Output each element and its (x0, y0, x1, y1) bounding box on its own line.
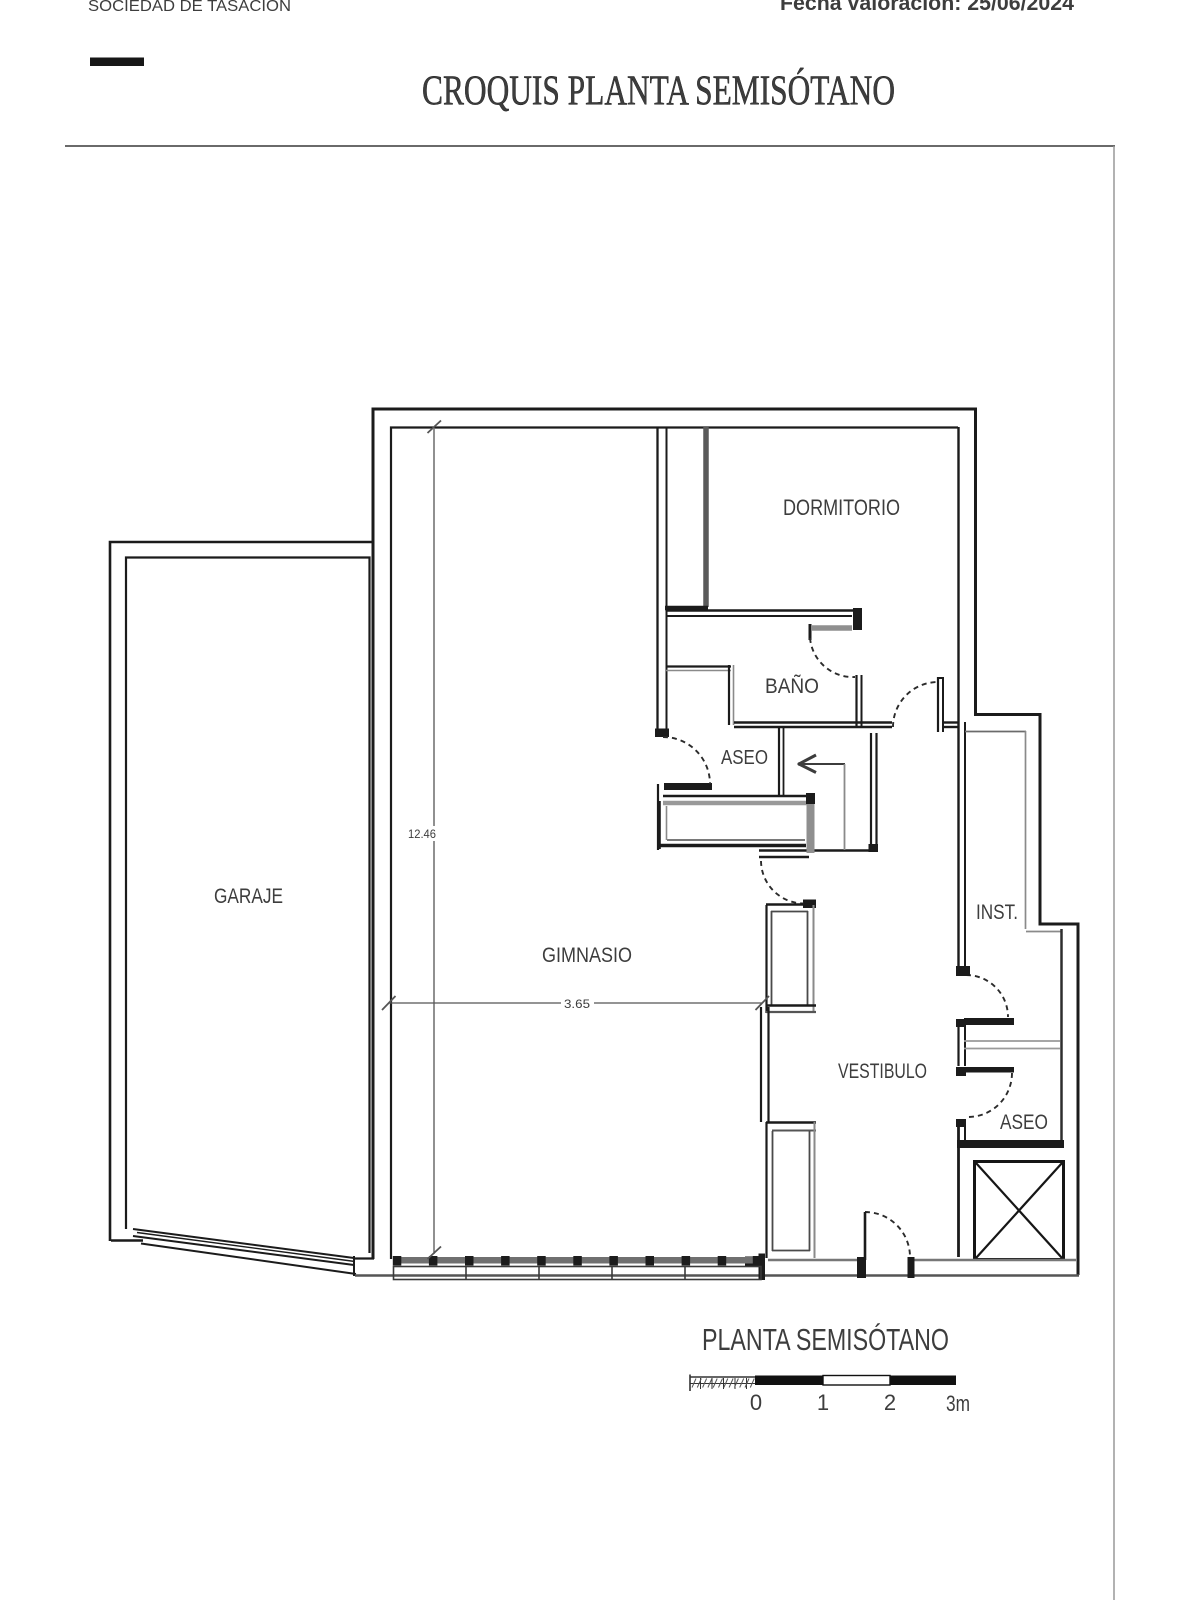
svg-text:BAÑO: BAÑO (765, 674, 819, 698)
svg-text:PLANTA SEMISÓTANO: PLANTA SEMISÓTANO (702, 1322, 949, 1357)
svg-text:GIMNASIO: GIMNASIO (542, 944, 632, 967)
svg-text:ASEO: ASEO (1000, 1110, 1048, 1134)
svg-text:GARAJE: GARAJE (214, 885, 283, 908)
svg-text:Fecha valoración: 25/06/2024: Fecha valoración: 25/06/2024 (780, 0, 1074, 15)
svg-text:CROQUIS PLANTA SEMISÓTANO: CROQUIS PLANTA SEMISÓTANO (422, 68, 895, 115)
svg-text:ASEO: ASEO (721, 747, 768, 769)
svg-text:3.65: 3.65 (564, 999, 590, 1011)
svg-text:DORMITORIO: DORMITORIO (783, 495, 900, 520)
svg-text:0: 0 (750, 1390, 762, 1415)
svg-text:INST.: INST. (976, 901, 1018, 924)
svg-text:2: 2 (884, 1390, 896, 1415)
svg-text:1: 1 (817, 1390, 829, 1415)
svg-text:SOCIEDAD DE TASACIÓN: SOCIEDAD DE TASACIÓN (88, 0, 291, 15)
svg-text:12.46: 12.46 (408, 829, 436, 841)
svg-text:3m: 3m (946, 1391, 970, 1416)
svg-text:VESTIBULO: VESTIBULO (838, 1060, 927, 1083)
